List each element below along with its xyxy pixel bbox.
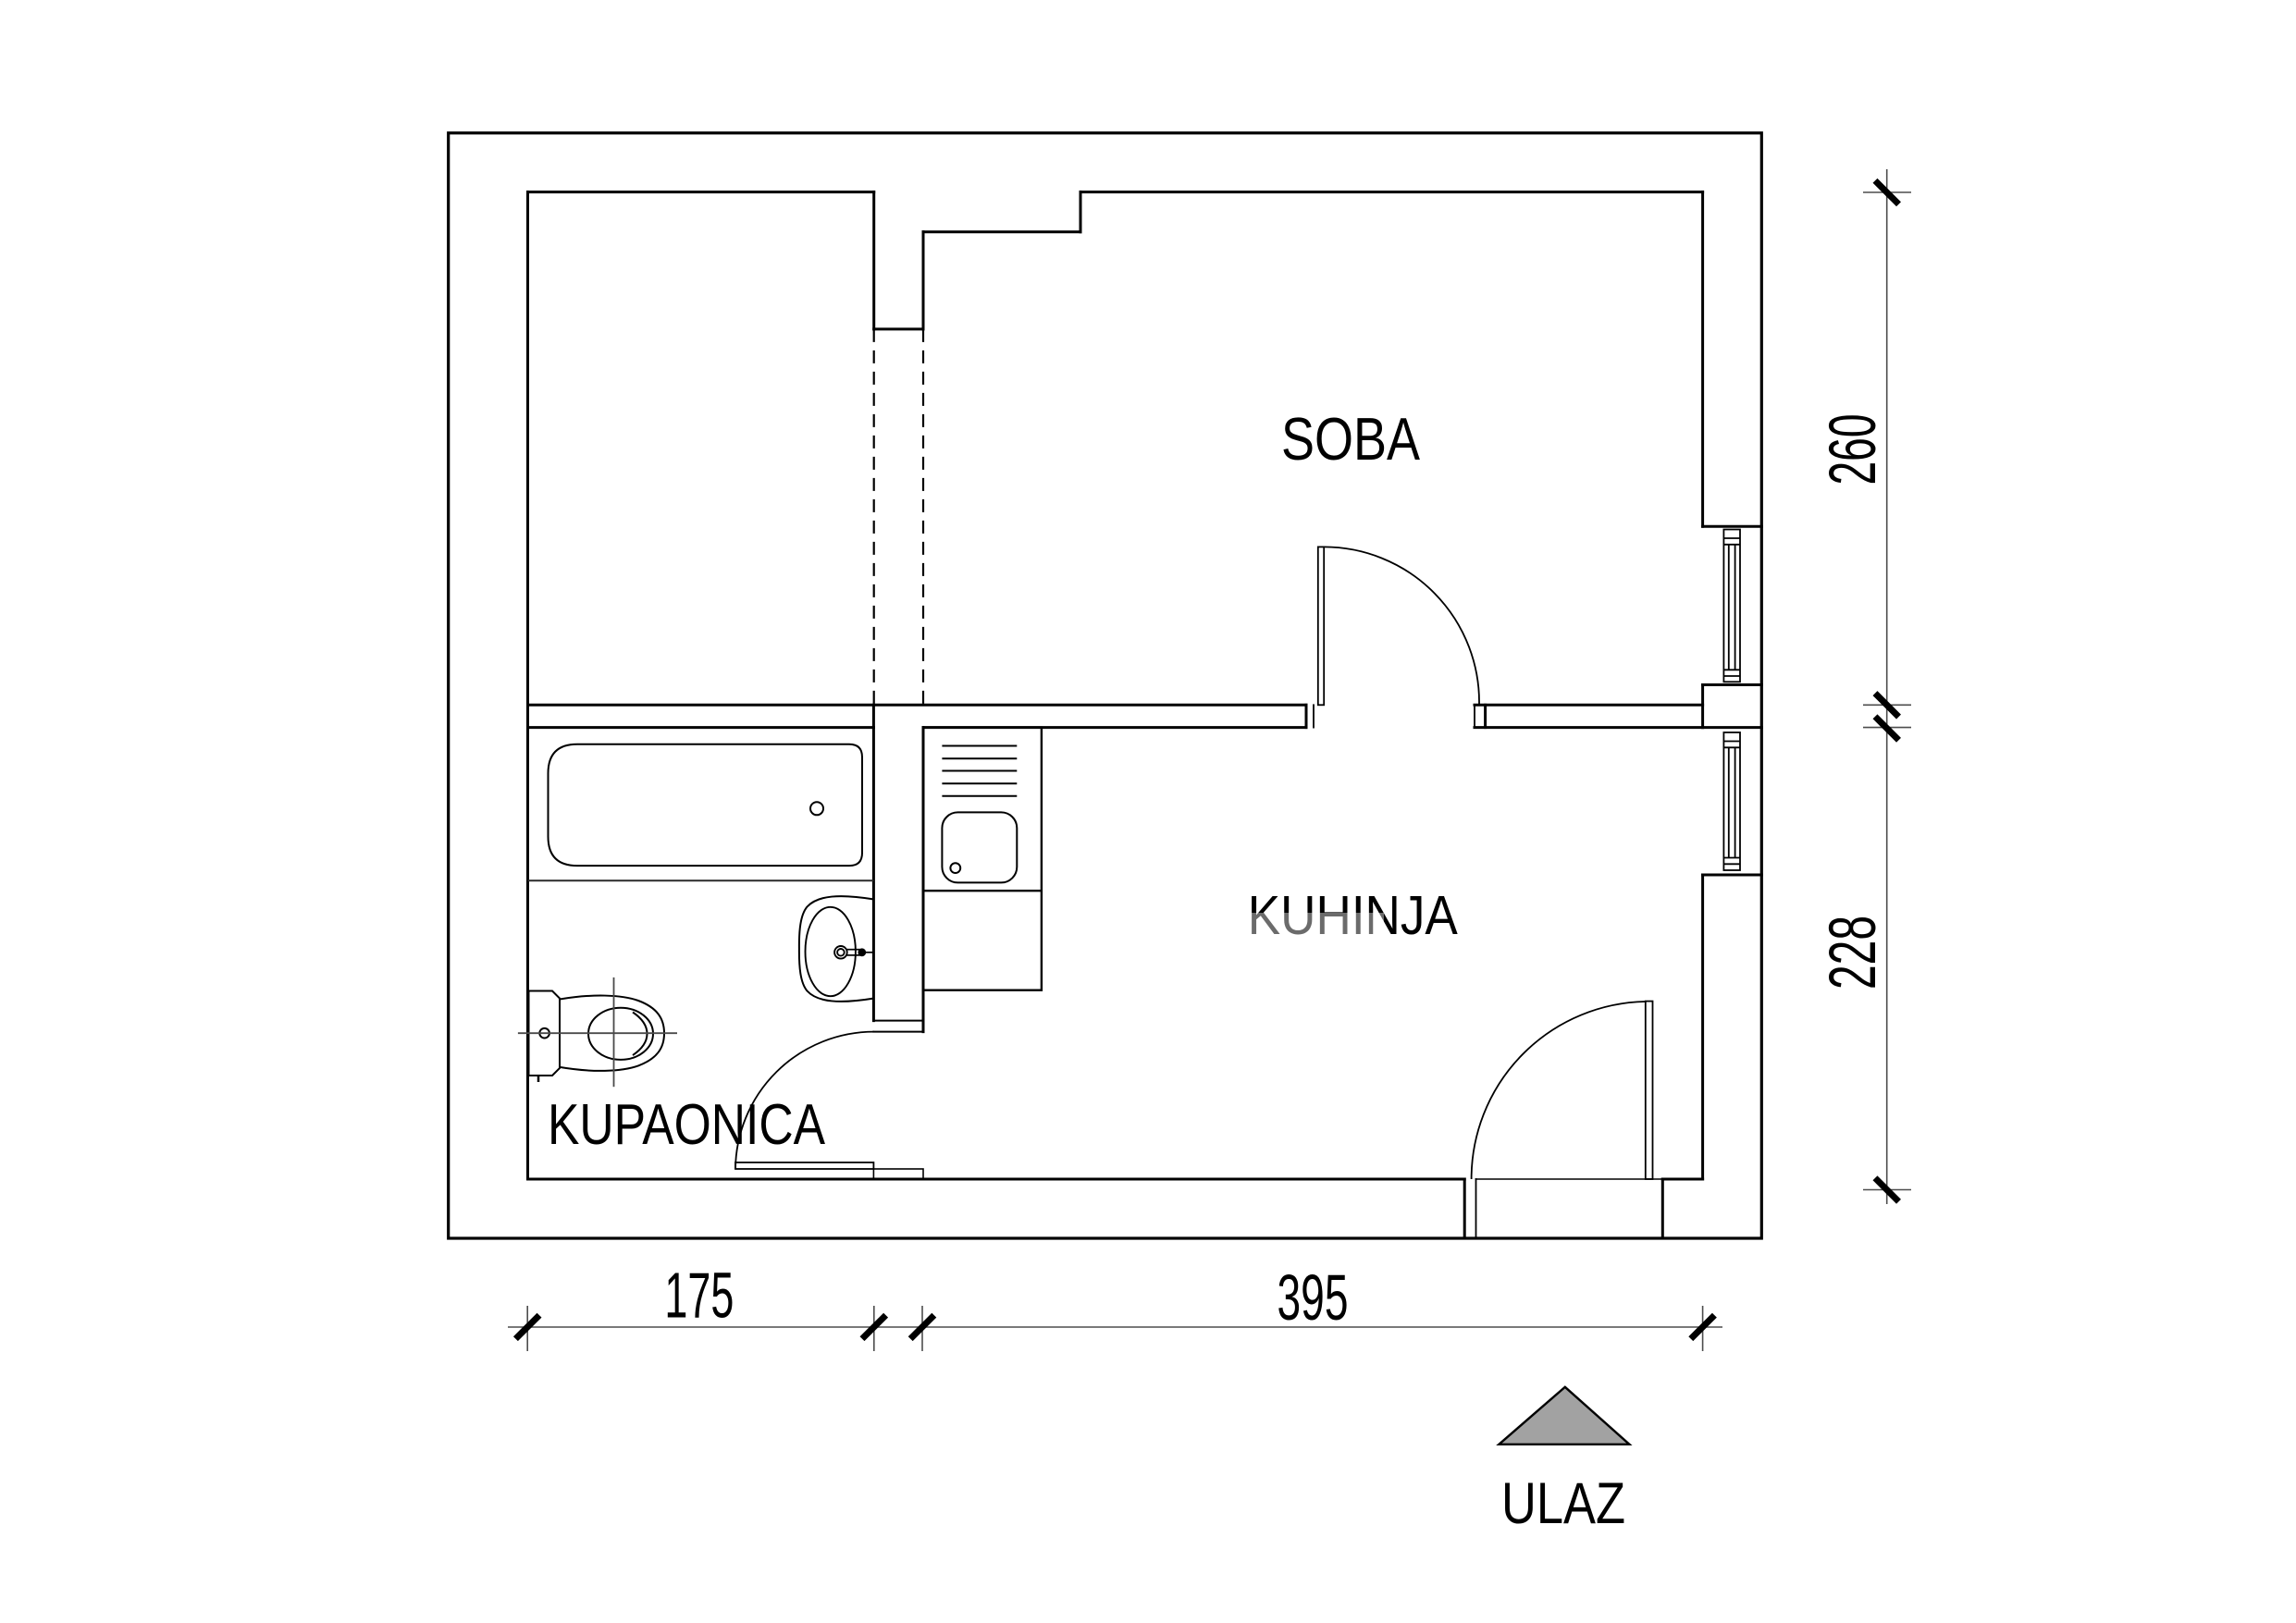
svg-text:KUPAONICA: KUPAONICA (548, 1093, 826, 1157)
svg-text:228: 228 (1817, 916, 1890, 990)
svg-text:ULAZ: ULAZ (1501, 1471, 1625, 1536)
svg-text:SOBA: SOBA (1281, 405, 1421, 473)
svg-text:175: 175 (664, 1260, 734, 1332)
svg-text:395: 395 (1278, 1261, 1349, 1334)
svg-text:260: 260 (1817, 414, 1890, 486)
